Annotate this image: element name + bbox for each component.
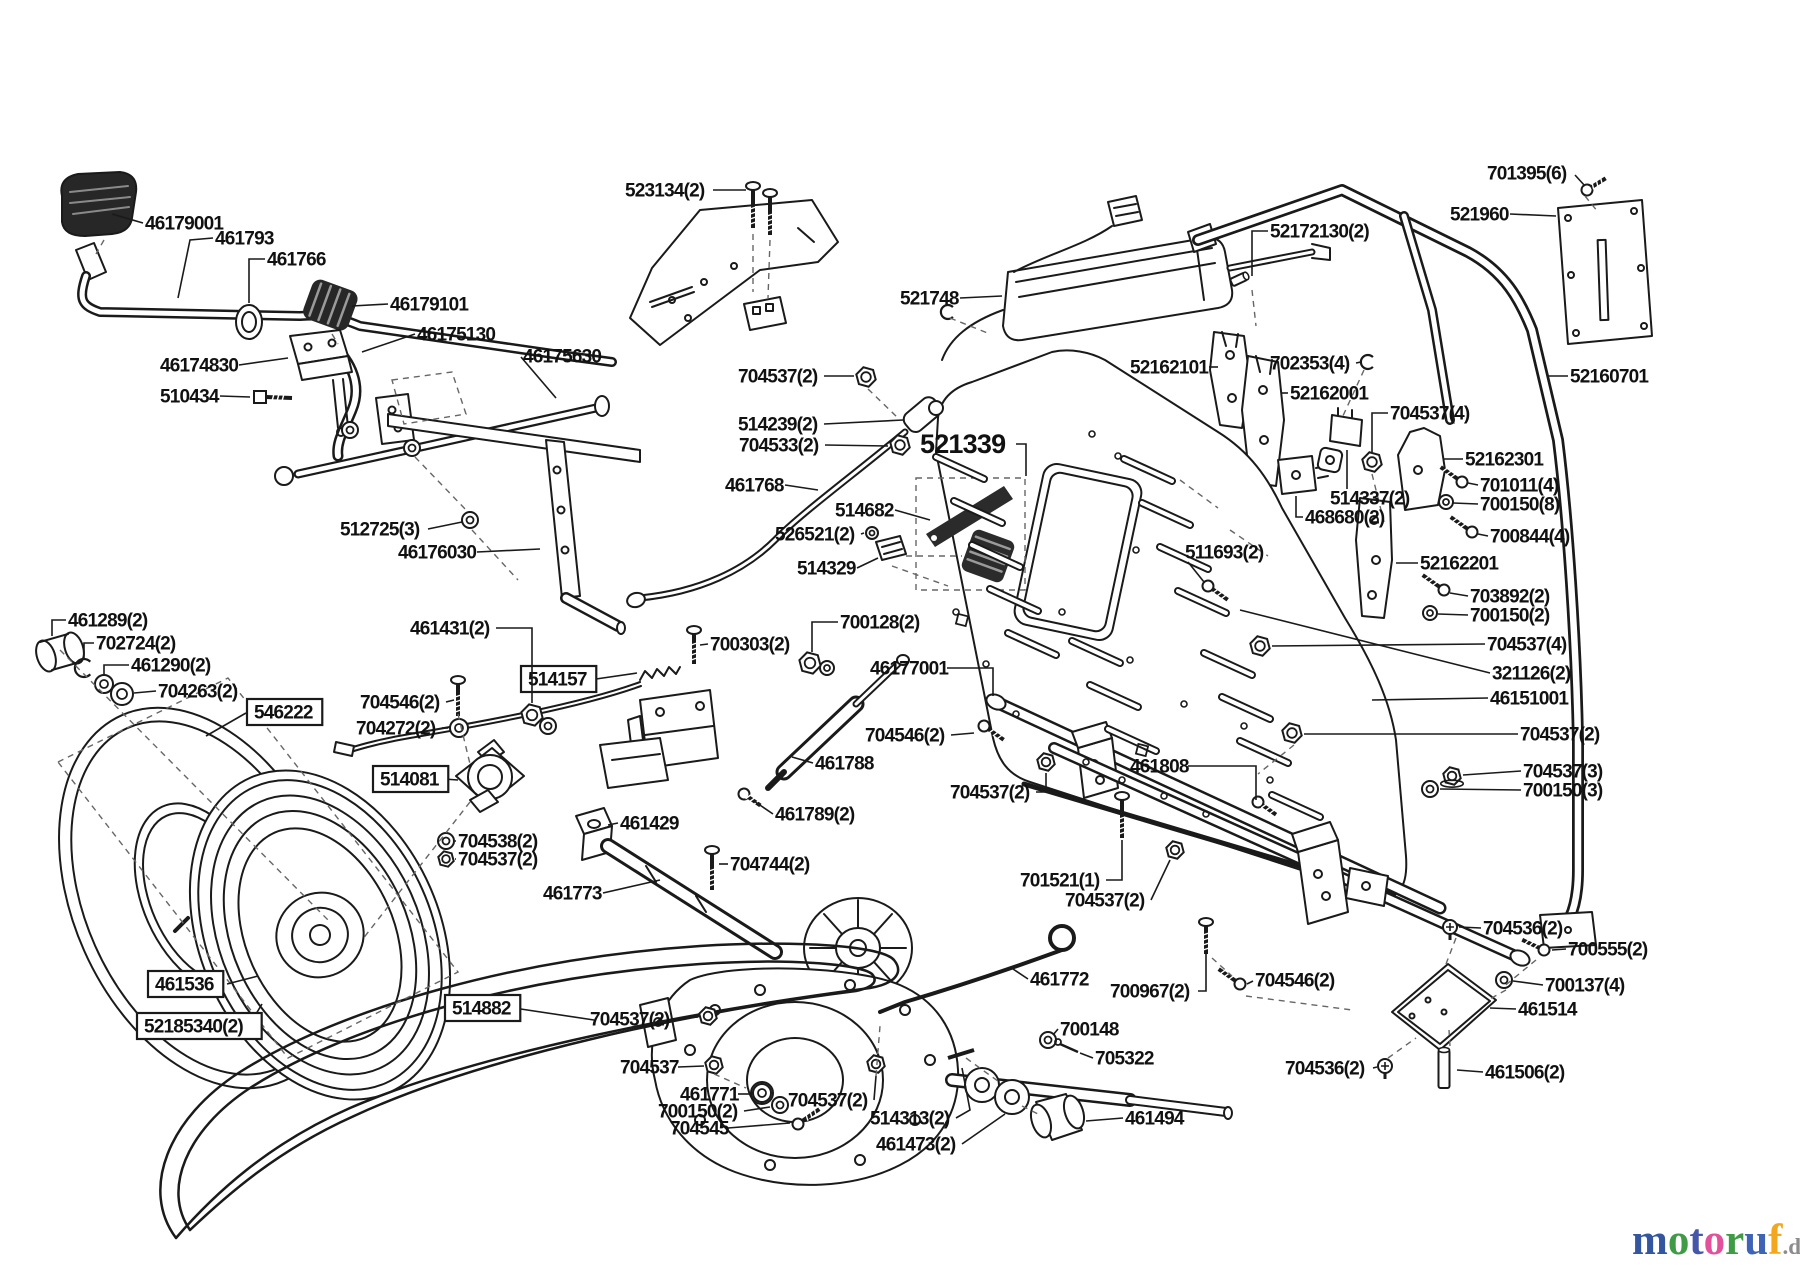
- leader-line: [1575, 175, 1585, 186]
- part-label-704537(2): 704537(2): [738, 366, 818, 387]
- svg-text:461772: 461772: [1030, 969, 1089, 990]
- part-label-468680(2): 468680(2): [1305, 507, 1385, 528]
- leader-line: [1440, 789, 1521, 790]
- part-label-514239(2): 514239(2): [738, 414, 818, 435]
- part-label-704545: 704545: [670, 1118, 730, 1139]
- logo-letter: r: [1725, 1217, 1744, 1264]
- leader-line: [84, 643, 94, 659]
- part-label-700303(2): 700303(2): [710, 634, 790, 655]
- leader-line: [1080, 1053, 1093, 1058]
- leader-line: [1106, 840, 1122, 880]
- part-label-704536(2): 704536(2): [1285, 1058, 1365, 1079]
- leader-line: [1468, 483, 1478, 485]
- svg-text:46151001: 46151001: [1490, 688, 1569, 709]
- leader-line: [1198, 952, 1206, 991]
- svg-text:701521(1): 701521(1): [1020, 870, 1100, 891]
- svg-text:704537(2): 704537(2): [950, 782, 1030, 803]
- part-label-546222: 546222: [247, 699, 322, 725]
- leader-line: [239, 358, 288, 365]
- svg-text:46179101: 46179101: [390, 294, 469, 315]
- part-label-704537(2): 704537(2): [590, 1009, 670, 1030]
- leader-line: [1463, 771, 1521, 775]
- part-label-704546(2): 704546(2): [1255, 970, 1335, 991]
- part-label-52162201: 52162201: [1420, 553, 1499, 574]
- part-label-510434: 510434: [160, 386, 220, 407]
- part-label-511693(2): 511693(2): [1185, 542, 1264, 563]
- svg-text:521960: 521960: [1450, 204, 1509, 225]
- part-label-461514: 461514: [1518, 999, 1578, 1020]
- logo-letter: t: [1689, 1217, 1703, 1264]
- leader-line: [1450, 593, 1468, 596]
- svg-text:514682: 514682: [835, 500, 894, 521]
- part-label-700150(8): 700150(8): [1480, 494, 1560, 515]
- part-label-46175130: 46175130: [417, 324, 495, 345]
- svg-text:700967(2): 700967(2): [1110, 981, 1190, 1002]
- svg-text:701011(4): 701011(4): [1480, 475, 1559, 496]
- leader-line: [52, 620, 66, 636]
- part-label-700555(2): 700555(2): [1568, 939, 1648, 960]
- part-label-461290(2): 461290(2): [131, 655, 211, 676]
- svg-text:704537(2): 704537(2): [1520, 724, 1600, 745]
- logo-letter: o: [1704, 1217, 1726, 1264]
- svg-text:704272(2): 704272(2): [356, 718, 436, 739]
- leader-line: [824, 420, 903, 424]
- leader-line: [951, 733, 974, 735]
- svg-text:704546(2): 704546(2): [865, 725, 945, 746]
- svg-text:461768: 461768: [725, 475, 784, 496]
- svg-text:700150(8): 700150(8): [1480, 494, 1560, 515]
- part-label-704537: 704537: [620, 1057, 679, 1078]
- svg-text:461514: 461514: [1518, 999, 1578, 1020]
- svg-text:46179001: 46179001: [145, 213, 224, 234]
- part-label-526521(2): 526521(2): [775, 524, 855, 545]
- svg-text:461290(2): 461290(2): [131, 655, 211, 676]
- leader-line: [1252, 231, 1268, 276]
- part-label-704272(2): 704272(2): [356, 718, 436, 739]
- part-label-461772: 461772: [1030, 969, 1089, 990]
- leader-line: [477, 549, 540, 552]
- part-label-704537(2): 704537(2): [1520, 724, 1600, 745]
- svg-text:514882: 514882: [452, 998, 511, 1019]
- leader-line: [700, 644, 708, 645]
- svg-text:461788: 461788: [815, 753, 874, 774]
- leader-line: [960, 296, 1002, 298]
- svg-text:704537(4): 704537(4): [1487, 634, 1567, 655]
- part-label-514337(2): 514337(2): [1330, 488, 1410, 509]
- part-label-461766: 461766: [267, 249, 326, 270]
- svg-text:704263(2): 704263(2): [158, 681, 238, 702]
- svg-text:704537: 704537: [620, 1057, 679, 1078]
- leader-line: [249, 259, 265, 303]
- leader-line: [178, 238, 213, 298]
- part-label-461289(2): 461289(2): [68, 610, 148, 631]
- part-label-46176030: 46176030: [398, 542, 476, 563]
- part-label-704533(2): 704533(2): [739, 435, 819, 456]
- part-label-52162101: 52162101: [1130, 357, 1209, 378]
- part-label-46175630: 46175630: [523, 346, 601, 367]
- leader-line: [596, 673, 637, 679]
- svg-text:461494: 461494: [1125, 1108, 1185, 1129]
- leader-line: [220, 396, 250, 397]
- svg-text:461536: 461536: [155, 974, 214, 995]
- leader-line: [1151, 860, 1170, 900]
- leader-line: [1296, 496, 1303, 517]
- svg-text:701395(6): 701395(6): [1487, 163, 1567, 184]
- part-label-461536: 461536: [148, 971, 223, 997]
- part-label-704546(2): 704546(2): [360, 692, 440, 713]
- part-label-514882: 514882: [445, 995, 520, 1021]
- parts-diagram-page: 4617900146179346176646179101461751304617…: [0, 0, 1800, 1272]
- svg-text:52162101: 52162101: [1130, 357, 1209, 378]
- svg-text:514239(2): 514239(2): [738, 414, 818, 435]
- part-label-512725(3): 512725(3): [340, 519, 420, 540]
- svg-text:700128(2): 700128(2): [840, 612, 920, 633]
- part-label-321126(2): 321126(2): [1492, 663, 1571, 684]
- part-label-701395(6): 701395(6): [1487, 163, 1567, 184]
- part-label-52185340(2): 52185340(2): [137, 1013, 262, 1039]
- svg-text:46175630: 46175630: [523, 346, 601, 367]
- part-label-705322: 705322: [1095, 1048, 1154, 1069]
- part-label-46179101: 46179101: [390, 294, 469, 315]
- svg-text:702724(2): 702724(2): [96, 633, 176, 654]
- plate-521960: [1558, 200, 1652, 344]
- svg-text:52162301: 52162301: [1465, 449, 1544, 470]
- leader-line: [514, 1008, 594, 1020]
- part-label-46174830: 46174830: [160, 355, 238, 376]
- leader-line: [1013, 969, 1028, 979]
- logo-letter: f: [1768, 1217, 1782, 1264]
- part-label-704263(2): 704263(2): [158, 681, 238, 702]
- leader-line: [1490, 1008, 1516, 1009]
- part-label-461773: 461773: [543, 883, 602, 904]
- leader-line: [1372, 413, 1388, 452]
- hub-bushing-parts: [32, 630, 87, 674]
- leader-line: [1459, 927, 1481, 928]
- leader-line: [825, 445, 888, 446]
- svg-text:700137(4): 700137(4): [1545, 975, 1625, 996]
- leader-line: [1513, 981, 1543, 985]
- svg-text:704537(3): 704537(3): [1523, 761, 1603, 782]
- svg-text:461773: 461773: [543, 883, 602, 904]
- part-label-461506(2): 461506(2): [1485, 1062, 1565, 1083]
- svg-text:521748: 521748: [900, 288, 959, 309]
- part-label-461431(2): 461431(2): [410, 618, 490, 639]
- svg-text:704546(2): 704546(2): [360, 692, 440, 713]
- svg-text:52172130(2): 52172130(2): [1270, 221, 1369, 242]
- svg-text:704533(2): 704533(2): [739, 435, 819, 456]
- svg-text:700303(2): 700303(2): [710, 634, 790, 655]
- svg-text:514313(2): 514313(2): [870, 1108, 950, 1129]
- svg-text:700150(3): 700150(3): [1523, 780, 1603, 801]
- svg-text:704537(2): 704537(2): [1065, 890, 1145, 911]
- part-label-700148: 700148: [1060, 1019, 1119, 1040]
- svg-text:704537(2): 704537(2): [738, 366, 818, 387]
- logo-letter: o: [1668, 1217, 1690, 1264]
- logo-letter: u: [1744, 1217, 1768, 1264]
- part-label-704537(2): 704537(2): [950, 782, 1030, 803]
- svg-text:510434: 510434: [160, 386, 220, 407]
- part-label-700128(2): 700128(2): [840, 612, 920, 633]
- diagram-svg: 4617900146179346176646179101461751304617…: [0, 0, 1800, 1272]
- leader-line: [1453, 503, 1478, 504]
- part-label-701011(4): 701011(4): [1480, 475, 1559, 496]
- svg-text:700844(4): 700844(4): [1490, 526, 1570, 547]
- part-label-704537(3): 704537(3): [1523, 761, 1603, 782]
- part-label-52162301: 52162301: [1465, 449, 1544, 470]
- part-label-700150(2): 700150(2): [1470, 605, 1550, 626]
- svg-text:461289(2): 461289(2): [68, 610, 148, 631]
- leader-line: [678, 1066, 704, 1067]
- part-label-700967(2): 700967(2): [1110, 981, 1190, 1002]
- skid-plate: [1392, 964, 1496, 1050]
- svg-text:700555(2): 700555(2): [1568, 939, 1648, 960]
- part-label-46177001: 46177001: [870, 658, 949, 679]
- part-label-702724(2): 702724(2): [96, 633, 176, 654]
- svg-text:704536(2): 704536(2): [1285, 1058, 1365, 1079]
- part-label-461768: 461768: [725, 475, 784, 496]
- part-label-704537(2): 704537(2): [458, 849, 538, 870]
- part-label-461793: 461793: [215, 228, 274, 249]
- leader-line: [1438, 614, 1468, 615]
- svg-text:461431(2): 461431(2): [410, 618, 490, 639]
- svg-text:704536(2): 704536(2): [1483, 918, 1563, 939]
- svg-text:46176030: 46176030: [398, 542, 476, 563]
- motoruf-domain-suffix: .de: [1783, 1234, 1800, 1259]
- part-label-700150(3): 700150(3): [1523, 780, 1603, 801]
- part-label-461788: 461788: [815, 753, 874, 774]
- part-label-704537(4): 704537(4): [1487, 634, 1567, 655]
- leader-line: [1372, 698, 1488, 700]
- part-label-461789(2): 461789(2): [775, 804, 855, 825]
- leader-line: [446, 700, 454, 702]
- part-label-52172130(2): 52172130(2): [1270, 221, 1369, 242]
- svg-text:46175130: 46175130: [417, 324, 495, 345]
- svg-text:704537(2): 704537(2): [458, 849, 538, 870]
- leader-line: [1457, 1070, 1483, 1072]
- svg-text:512725(3): 512725(3): [340, 519, 420, 540]
- svg-text:704537(2): 704537(2): [590, 1009, 670, 1030]
- svg-text:521339: 521339: [920, 429, 1006, 459]
- svg-text:461473(2): 461473(2): [876, 1134, 956, 1155]
- part-label-521339: 521339: [920, 429, 1006, 459]
- part-label-514313(2): 514313(2): [870, 1108, 950, 1129]
- logo-letter: m: [1632, 1217, 1668, 1264]
- svg-text:523134(2): 523134(2): [625, 180, 705, 201]
- svg-text:461789(2): 461789(2): [775, 804, 855, 825]
- leader-line: [362, 334, 415, 352]
- svg-text:514081: 514081: [380, 769, 440, 790]
- svg-text:700148: 700148: [1060, 1019, 1119, 1040]
- svg-text:703892(2): 703892(2): [1470, 586, 1550, 607]
- leader-line: [134, 691, 156, 693]
- part-label-52162001: 52162001: [1290, 383, 1369, 404]
- svg-text:700150(2): 700150(2): [1470, 605, 1550, 626]
- part-label-700137(4): 700137(4): [1545, 975, 1625, 996]
- leader-line: [895, 510, 930, 520]
- part-label-521960: 521960: [1450, 204, 1509, 225]
- leader-line: [754, 801, 773, 814]
- leader-line: [812, 622, 838, 652]
- svg-text:461808: 461808: [1130, 756, 1189, 777]
- mounting-plate: [630, 200, 838, 345]
- part-label-704537(2): 704537(2): [788, 1090, 868, 1111]
- leader-line: [1247, 981, 1253, 984]
- svg-text:546222: 546222: [254, 702, 313, 723]
- svg-text:704546(2): 704546(2): [1255, 970, 1335, 991]
- svg-text:514157: 514157: [528, 669, 587, 690]
- leader-line: [352, 304, 388, 306]
- leader-line: [104, 665, 129, 675]
- svg-text:514337(2): 514337(2): [1330, 488, 1410, 509]
- leader-line: [428, 522, 462, 529]
- part-label-46179001: 46179001: [145, 213, 224, 234]
- part-label-704537(2): 704537(2): [1065, 890, 1145, 911]
- svg-text:704744(2): 704744(2): [730, 854, 810, 875]
- svg-text:52185340(2): 52185340(2): [144, 1016, 243, 1037]
- part-label-702353(4): 702353(4): [1270, 353, 1350, 374]
- svg-text:468680(2): 468680(2): [1305, 507, 1385, 528]
- svg-text:52162201: 52162201: [1420, 553, 1499, 574]
- leader-line: [1053, 1029, 1058, 1035]
- svg-text:52160701: 52160701: [1570, 366, 1649, 387]
- part-label-704536(2): 704536(2): [1483, 918, 1563, 939]
- part-label-514081: 514081: [373, 766, 448, 792]
- leader-line: [1356, 362, 1361, 363]
- leader-line: [857, 558, 878, 568]
- leader-line: [1510, 214, 1556, 216]
- svg-text:46174830: 46174830: [160, 355, 238, 376]
- svg-text:46177001: 46177001: [870, 658, 949, 679]
- part-label-704537(4): 704537(4): [1390, 403, 1470, 424]
- svg-text:705322: 705322: [1095, 1048, 1154, 1069]
- part-label-523134(2): 523134(2): [625, 180, 705, 201]
- part-label-514682: 514682: [835, 500, 894, 521]
- leader-line: [962, 1114, 1005, 1144]
- svg-text:704537(2): 704537(2): [788, 1090, 868, 1111]
- svg-text:321126(2): 321126(2): [1492, 663, 1571, 684]
- leader-line: [603, 880, 660, 893]
- part-label-52160701: 52160701: [1570, 366, 1649, 387]
- part-label-521748: 521748: [900, 288, 959, 309]
- svg-text:461429: 461429: [620, 813, 679, 834]
- part-label-700844(4): 700844(4): [1490, 526, 1570, 547]
- leader-line: [785, 485, 818, 490]
- part-label-704546(2): 704546(2): [865, 725, 945, 746]
- svg-text:461793: 461793: [215, 228, 274, 249]
- part-label-704744(2): 704744(2): [730, 854, 810, 875]
- part-label-461473(2): 461473(2): [876, 1134, 956, 1155]
- leader-line: [1086, 1118, 1123, 1121]
- leader-line: [1478, 534, 1488, 536]
- svg-text:511693(2): 511693(2): [1185, 542, 1264, 563]
- part-label-461429: 461429: [620, 813, 679, 834]
- part-label-46151001: 46151001: [1490, 688, 1569, 709]
- svg-text:514329: 514329: [797, 558, 856, 579]
- leader-line: [1552, 949, 1566, 950]
- motoruf-logo[interactable]: motoruf.de: [1632, 1218, 1800, 1270]
- motoruf-wordmark: motoruf: [1632, 1217, 1783, 1264]
- svg-text:461506(2): 461506(2): [1485, 1062, 1565, 1083]
- part-label-514329: 514329: [797, 558, 856, 579]
- part-label-461808: 461808: [1130, 756, 1189, 777]
- svg-text:704537(4): 704537(4): [1390, 403, 1470, 424]
- part-label-703892(2): 703892(2): [1470, 586, 1550, 607]
- svg-text:702353(4): 702353(4): [1270, 353, 1350, 374]
- svg-text:526521(2): 526521(2): [775, 524, 855, 545]
- svg-text:461766: 461766: [267, 249, 326, 270]
- part-label-461494: 461494: [1125, 1108, 1185, 1129]
- leader-line: [861, 533, 864, 534]
- part-label-701521(1): 701521(1): [1020, 870, 1100, 891]
- leader-line: [1373, 1067, 1377, 1068]
- svg-text:52162001: 52162001: [1290, 383, 1369, 404]
- svg-text:704545: 704545: [670, 1118, 730, 1139]
